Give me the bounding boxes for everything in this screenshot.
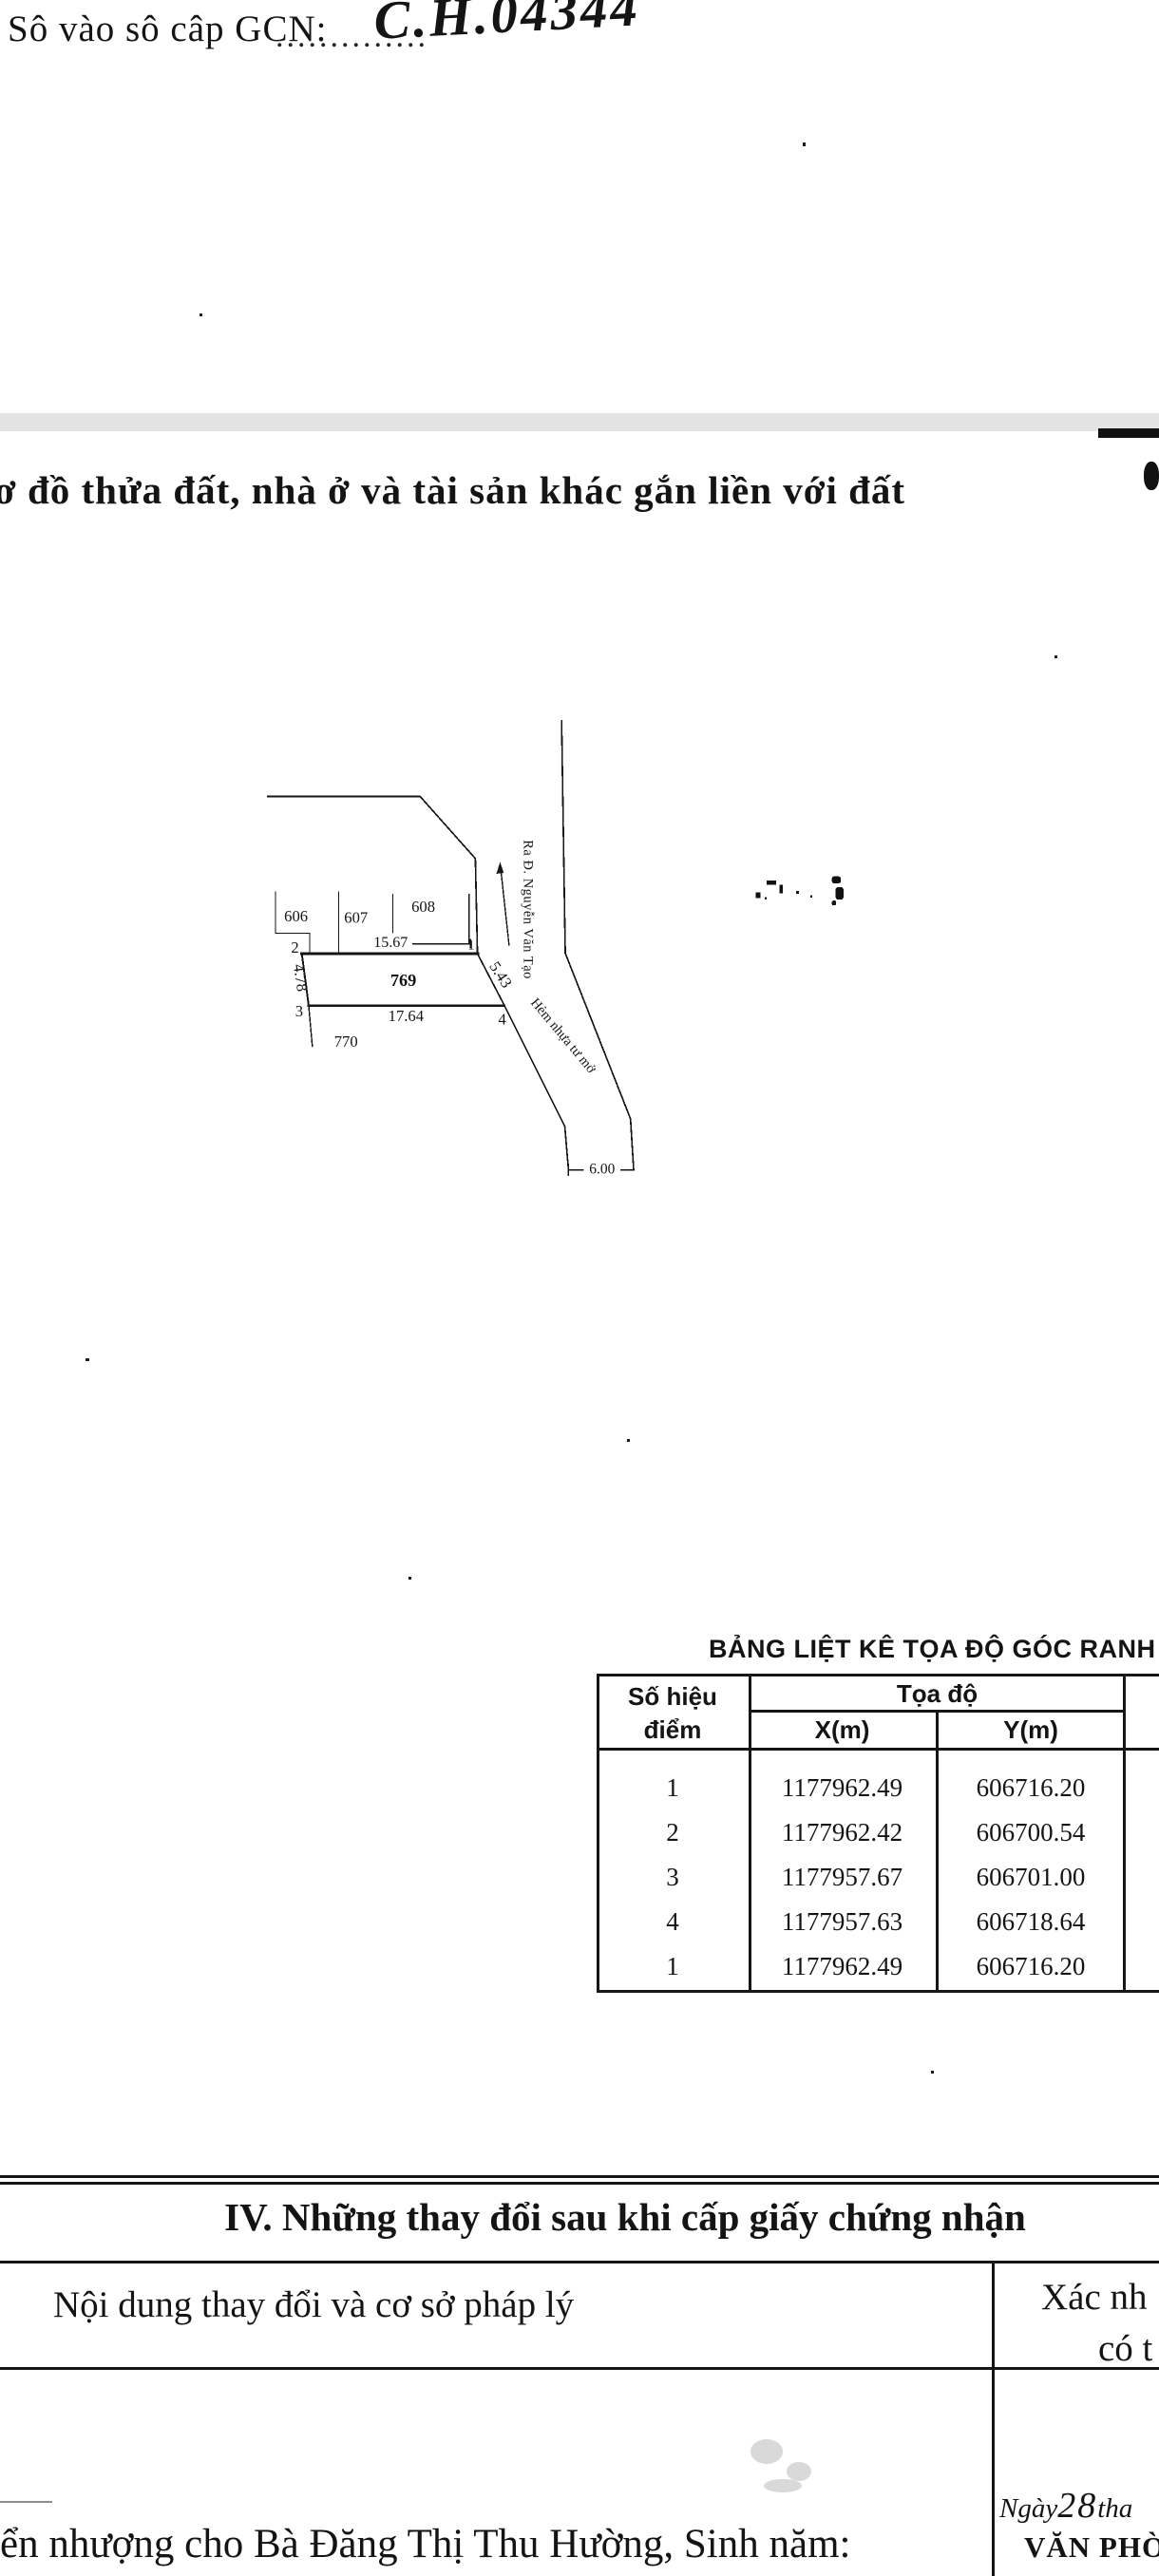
corner-point-2: 2 <box>291 938 298 957</box>
scan-smudge <box>787 2462 811 2481</box>
gcn-handwritten-number: C.H.04344 <box>372 0 641 52</box>
scan-gray-band <box>0 413 1159 431</box>
coord-table-title: BẢNG LIỆT KÊ TỌA ĐỘ GÓC RANH <box>709 1635 1156 1664</box>
scan-noise-dot <box>408 1577 411 1580</box>
dim-top-label: 15.67 <box>373 935 408 951</box>
row1-y: 606716.20 <box>936 1773 1126 1803</box>
parcel-606-label: 606 <box>284 907 308 925</box>
table-border-bottom <box>597 1990 1159 1993</box>
scan-noise-dot <box>627 1439 630 1442</box>
scan-smudge <box>750 2439 783 2464</box>
scan-smudge-cluster <box>755 877 843 905</box>
footer-date-day-handwritten: 28 <box>1057 2486 1097 2526</box>
section-iv-right-header-line2: có t <box>1098 2327 1152 2370</box>
section-iv-header-bottom-line <box>0 2367 1159 2370</box>
table-coord-subdivider <box>749 1710 1126 1713</box>
scan-edge-blob-artifact <box>1144 462 1159 490</box>
section-iv-header-top-line <box>0 2261 1159 2263</box>
dim-left-label: 4.78 <box>290 963 312 993</box>
parcel-608-label: 608 <box>411 898 435 916</box>
section-iv-double-rule-top <box>0 2175 1159 2178</box>
section-iv-column-divider <box>992 2263 995 2576</box>
scan-noise-dot <box>931 2071 934 2074</box>
cadastral-map: 606 607 608 769 770 1 2 3 4 15.67 17.64 … <box>0 712 1159 1596</box>
scan-noise-dot <box>803 142 806 146</box>
dim-right-label: 5.43 <box>485 958 516 992</box>
boundary-below-point3 <box>309 1005 313 1046</box>
footer-date-note: Ngày28tha <box>999 2485 1159 2527</box>
col-header-point-line2: điểm <box>597 1715 749 1745</box>
table-header-bottom-line <box>597 1748 1159 1751</box>
row5-y: 606716.20 <box>936 1952 1126 1981</box>
dim-road-width-label: 6.00 <box>589 1161 615 1177</box>
row2-y: 606700.54 <box>936 1818 1126 1847</box>
row2-point: 2 <box>597 1818 749 1847</box>
section-iv-double-rule-bottom <box>0 2182 1159 2185</box>
row1-point: 1 <box>597 1773 749 1803</box>
street-arrow-line <box>501 867 509 944</box>
coord-table: Số hiệu điểm Tọa độ X(m) Y(m) 1 1177962.… <box>597 1674 1159 1993</box>
dotted-line-remnant <box>0 2501 52 2503</box>
corner-point-4: 4 <box>498 1010 506 1028</box>
street-arrow-head <box>497 862 504 874</box>
footer-transfer-entry: ển nhượng cho Bà Đăng Thị Thu Hường, Sin… <box>0 2521 850 2567</box>
parcel-607-label: 607 <box>344 908 368 926</box>
plot-diagram-section-title: ơ đồ thửa đất, nhà ở và tài sản khác gắn… <box>0 467 905 513</box>
dim-bottom-label: 17.64 <box>389 1007 425 1025</box>
road-main-label: Ra Đ. Nguyễn Văn Tạo <box>520 840 535 979</box>
table-divider-x-y <box>936 1710 939 1993</box>
section-iv-right-header-line1: Xác nh <box>1041 2276 1148 2319</box>
parcel-769-label: 769 <box>390 971 416 990</box>
scan-noise-dot <box>85 1358 89 1361</box>
row1-x: 1177962.49 <box>749 1773 936 1803</box>
scan-noise-dot <box>1054 655 1057 658</box>
row3-y: 606701.00 <box>936 1863 1126 1892</box>
col-header-y: Y(m) <box>936 1715 1126 1745</box>
row2-x: 1177962.42 <box>749 1818 936 1847</box>
row5-x: 1177962.49 <box>749 1952 936 1981</box>
row5-point: 1 <box>597 1952 749 1981</box>
scan-edge-bar-artifact <box>1098 428 1159 438</box>
col-header-point-line1: Số hiệu <box>597 1682 749 1712</box>
row3-point: 3 <box>597 1863 749 1892</box>
scan-noise-dot <box>199 313 202 316</box>
row4-x: 1177957.63 <box>749 1907 936 1937</box>
footer-date-suffix: tha <box>1097 2493 1132 2524</box>
corner-point-1: 1 <box>467 938 474 954</box>
footer-office-name: VĂN PHÒNG Đ <box>1024 2530 1159 2565</box>
corner-point-3: 3 <box>295 1002 303 1020</box>
scan-smudge <box>764 2479 802 2492</box>
parcel-770-label: 770 <box>334 1032 358 1051</box>
road-alley-label: Hẻm nhựa tư mở <box>527 995 598 1077</box>
certificate-page: Sô vào sô câp GCN: .............. C.H.04… <box>0 0 1159 2576</box>
col-header-x: X(m) <box>749 1715 936 1745</box>
row4-point: 4 <box>597 1907 749 1937</box>
row4-y: 606718.64 <box>936 1907 1126 1937</box>
col-header-coord: Tọa độ <box>749 1679 1126 1709</box>
section-iv-title: IV. Những thay đổi sau khi cấp giấy chứn… <box>91 2194 1159 2240</box>
row3-x: 1177957.67 <box>749 1863 936 1892</box>
footer-date-prefix: Ngày <box>999 2493 1057 2524</box>
section-iv-left-header: Nội dung thay đổi và cơ sở pháp lý <box>53 2283 574 2326</box>
table-border-top <box>597 1674 1159 1676</box>
road-right-edge <box>561 721 634 1170</box>
boundary-topleft-line <box>268 797 478 955</box>
